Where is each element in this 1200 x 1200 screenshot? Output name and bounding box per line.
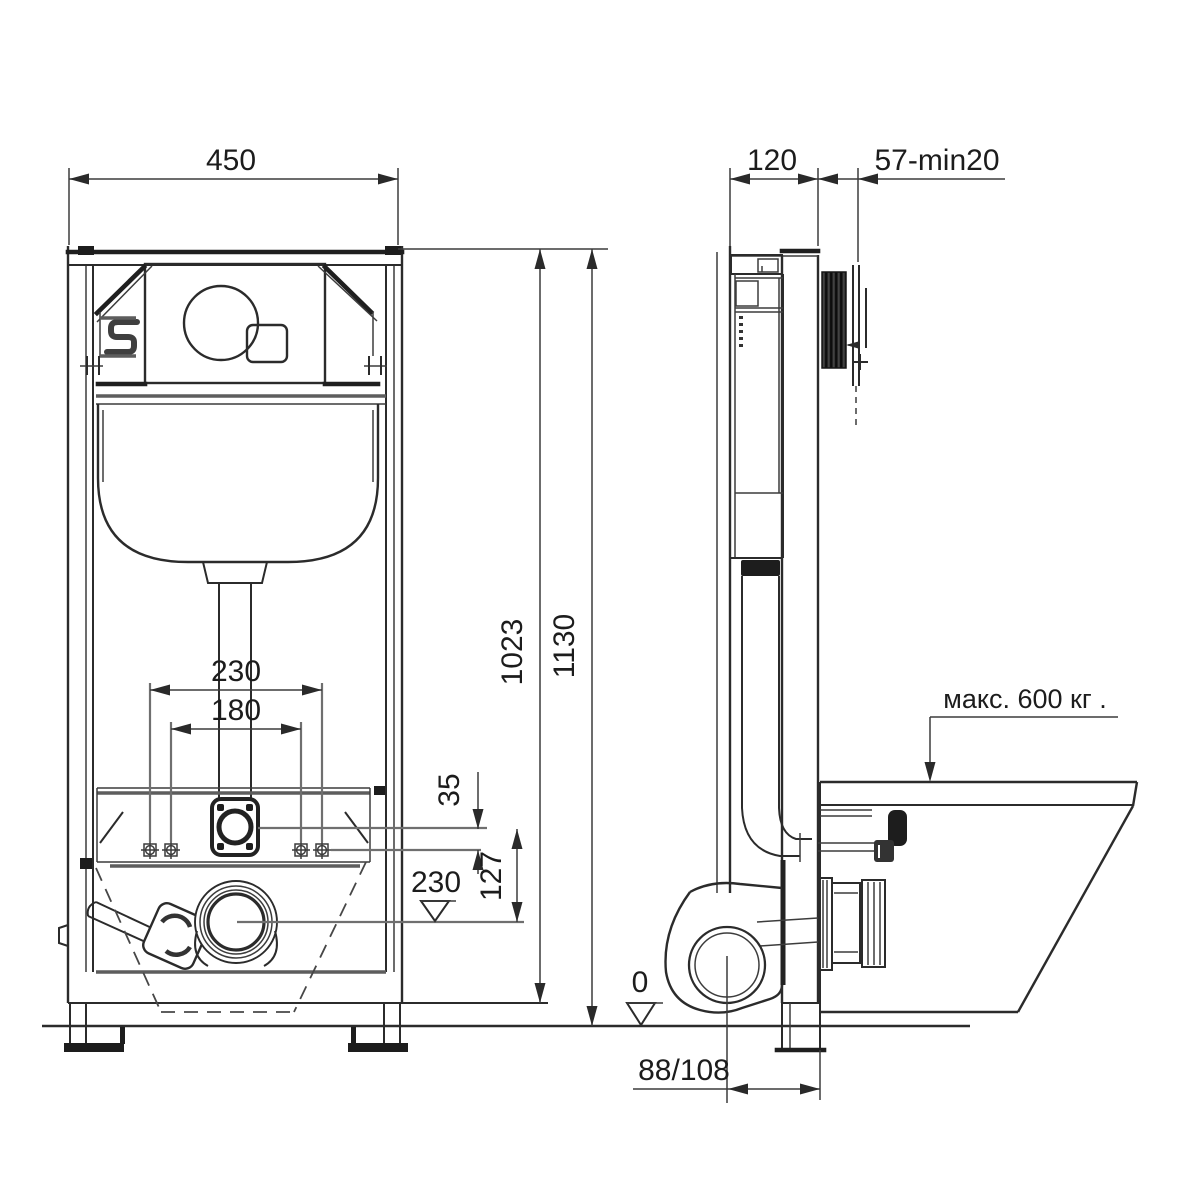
level-triangle-icon: [627, 1003, 655, 1025]
dim-fixing-inner-label: 180: [211, 694, 261, 727]
water-inlet-pipe: [107, 322, 137, 352]
side-view: 120 57-min20: [627, 144, 1137, 1103]
dim-inlet-to-drain-label: 127: [475, 851, 508, 901]
bolt-hole: [292, 841, 310, 859]
dim-actuator: 57-min20: [818, 144, 1005, 262]
dim-fixing-outer-label: 230: [211, 655, 261, 688]
bolt-hole: [313, 841, 331, 859]
zero-level-label: 0: [632, 966, 649, 999]
max-load-annotation: макс. 600 кг .: [925, 684, 1119, 782]
bolt-hole: [141, 841, 159, 859]
dim-inlet-to-drain: 127: [475, 829, 523, 922]
dim-heights: 1023 1130: [398, 249, 608, 1026]
drain-level-label: 230: [411, 866, 461, 899]
drain-bend-front: [88, 900, 212, 971]
dim-frame-depth: 120: [730, 144, 818, 246]
dim-height-total-label: 1130: [548, 614, 581, 679]
zero-level-marker: 0: [627, 966, 663, 1025]
rail-clip-left: [80, 356, 103, 375]
water-connection-fitting: [212, 799, 258, 855]
dim-inlet-offset-label: 35: [433, 773, 466, 806]
drain-outlet-front: [195, 881, 277, 966]
dim-frame-width: 450: [69, 144, 398, 245]
center-cross-icon: [852, 354, 868, 370]
installation-frame-technical-drawing: 450: [0, 0, 1200, 1200]
dim-actuator-label: 57-min20: [874, 144, 999, 177]
dim-frame-width-label: 450: [206, 144, 256, 177]
bolt-hole: [162, 841, 180, 859]
cistern-tank: [98, 404, 378, 799]
rail-clip-right: [364, 356, 387, 375]
drain-level-marker: 230: [411, 866, 461, 921]
front-view: 450: [59, 144, 608, 1052]
level-triangle-icon: [421, 901, 449, 921]
drawing-canvas: 450: [0, 0, 1200, 1200]
drain-sleeve: [818, 878, 885, 970]
flush-unit-housing: [80, 264, 387, 404]
max-load-label: макс. 600 кг .: [943, 684, 1106, 714]
actuator-hatched-block: [822, 272, 846, 368]
frame-structure: [59, 246, 548, 1052]
dim-height-frame-label: 1023: [496, 619, 529, 686]
bowl-fixing-bolts: [818, 810, 907, 862]
dim-drain-offset-label: 88/108: [638, 1054, 730, 1087]
dim-frame-depth-label: 120: [747, 144, 797, 177]
cistern-side: [731, 255, 783, 576]
flush-actuator: [822, 265, 868, 428]
flush-pipe-side: [742, 576, 812, 862]
